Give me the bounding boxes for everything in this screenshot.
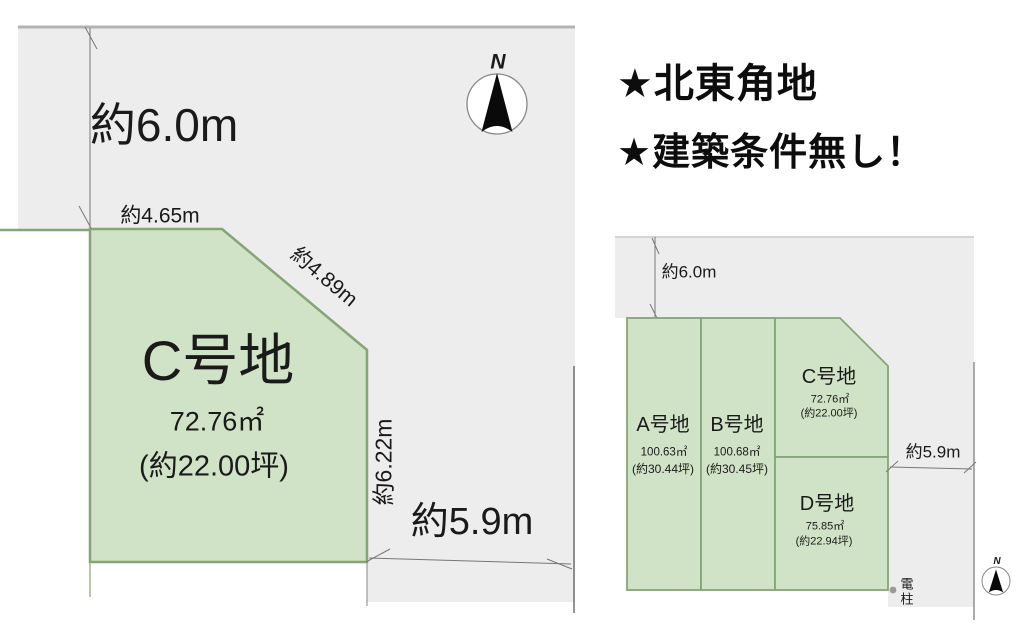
main-edge-top-label: 約4.65m xyxy=(120,206,199,227)
overview-plot-d-area-sqm: 75.85㎡ xyxy=(806,522,845,533)
overview-plot-b-name: B号地 xyxy=(710,415,763,435)
compass-icon xyxy=(467,73,527,134)
headline-no-building-conditions: ★建築条件無し！ xyxy=(617,134,925,172)
compass-north-label: N xyxy=(490,52,505,73)
overview-plot-d-name: D号地 xyxy=(800,494,854,514)
main-edge-right-label: 約6.22m xyxy=(373,419,396,506)
overview-plot-a-name: A号地 xyxy=(636,415,689,435)
compass-small-icon xyxy=(982,567,1010,595)
overview-plot-a-area-tsubo: (約30.44坪) xyxy=(632,463,694,475)
overview-plot-c-area-tsubo: (約22.00坪) xyxy=(801,409,858,420)
headline-corner-lot: ★北東角地 xyxy=(617,64,818,104)
compass-small-north-label: N xyxy=(993,557,1000,567)
land-plot-flyer: 約6.0m 約4.65m 約4.89m C号地 72.76㎡ (約22.00坪)… xyxy=(0,0,1024,635)
overview-plot-d-area-tsubo: (約22.94坪) xyxy=(796,537,853,548)
overview-road-width-right-label: 約5.9m xyxy=(906,444,961,461)
main-road-width-top-label: 約6.0m xyxy=(90,102,238,148)
utility-pole-icon xyxy=(890,587,897,594)
overview-plot-a-area-sqm: 100.63㎡ xyxy=(641,447,688,459)
overview-plot-b-area-tsubo: (約30.45坪) xyxy=(706,463,768,475)
overview-plot-c-name: C号地 xyxy=(802,367,856,387)
main-plot-name: C号地 xyxy=(142,333,294,389)
overview-road-width-top-label: 約6.0m xyxy=(662,264,717,281)
overview-plot-b-area-sqm: 100.68㎡ xyxy=(714,447,761,459)
overview-plot-c-area-sqm: 72.76㎡ xyxy=(811,395,850,406)
main-plot-area-tsubo: (約22.00坪) xyxy=(139,453,289,482)
main-road-width-right-label: 約5.9m xyxy=(411,503,533,541)
utility-pole-label: 電柱 xyxy=(900,577,913,607)
main-plot-area-sqm: 72.76㎡ xyxy=(170,409,265,436)
